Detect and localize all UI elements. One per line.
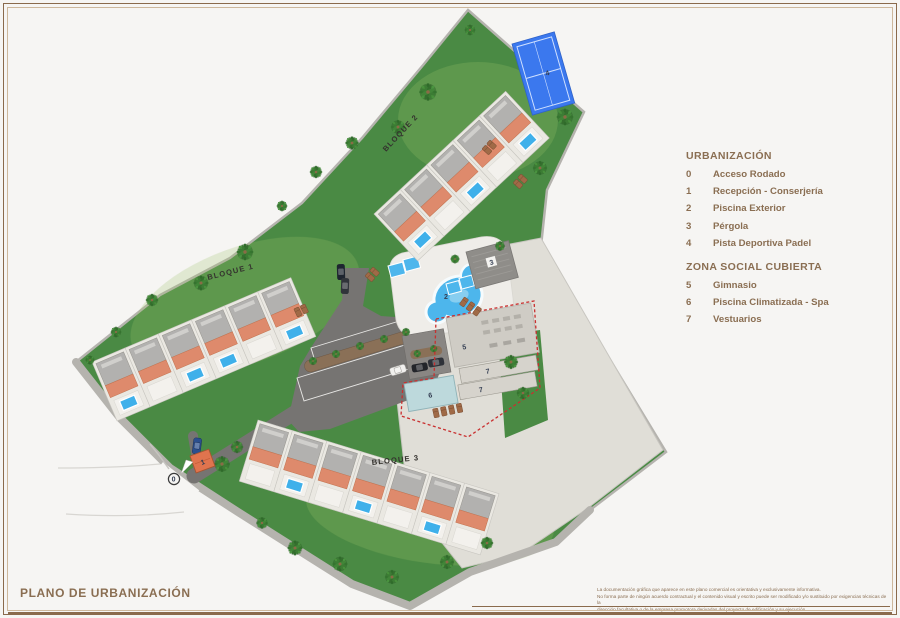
palm-tree-icon — [385, 570, 399, 584]
palm-tree-icon — [110, 326, 121, 337]
disclaimer-line: No forma parte de ningún acuerdo contrac… — [597, 594, 891, 607]
palm-tree-icon — [380, 335, 389, 344]
legend-item-label: Recepción - Conserjería — [713, 186, 823, 197]
legend-item-label: Vestuarios — [713, 314, 762, 325]
palm-tree-icon — [193, 275, 208, 290]
dark-car — [337, 264, 346, 280]
legend-item-padel: 4 Pista Deportiva Padel — [686, 238, 886, 249]
social-parking-annex — [402, 329, 451, 380]
palm-tree-icon — [276, 200, 287, 211]
palm-tree-icon — [256, 517, 268, 529]
palm-tree-icon — [332, 350, 341, 359]
palm-tree-icon — [517, 387, 530, 400]
palm-tree-icon — [481, 537, 494, 550]
palm-tree-icon — [464, 24, 475, 35]
legend-zona-social-title: ZONA SOCIAL CUBIERTA — [686, 261, 886, 273]
legend-item-number: 0 — [686, 169, 713, 180]
palm-tree-icon — [309, 357, 318, 366]
page-title: PLANO DE URBANIZACIÓN — [20, 586, 191, 600]
legend-item-number: 2 — [686, 203, 713, 214]
palm-tree-icon — [440, 555, 454, 569]
legend-item-label: Gimnasio — [713, 280, 757, 291]
legend-item-piscina-exterior: 2 Piscina Exterior — [686, 203, 886, 214]
palm-tree-icon — [557, 109, 574, 126]
frame-bottom-bar — [8, 612, 892, 616]
legend-item-label: Acceso Rodado — [713, 169, 786, 180]
palm-tree-icon — [495, 241, 505, 251]
social-building: 5 7 7 — [446, 303, 545, 400]
legend-item-vestuarios: 7 Vestuarios — [686, 314, 886, 325]
palm-tree-icon — [504, 355, 518, 369]
legend-item-piscina-climatizada: 6 Piscina Climatizada - Spa — [686, 297, 886, 308]
legend: URBANIZACIÓN 0 Acceso Rodado 1 Recepción… — [686, 150, 886, 331]
footer-divider — [472, 606, 890, 607]
dark-car — [341, 278, 350, 294]
palm-tree-icon — [450, 254, 459, 263]
palm-tree-icon — [237, 244, 254, 261]
legend-item-number: 7 — [686, 314, 713, 325]
disclaimer: La documentación gráfica que aparece en … — [597, 587, 891, 613]
legend-item-number: 4 — [686, 238, 713, 249]
legend-urbanizacion-title: URBANIZACIÓN — [686, 150, 886, 162]
disclaimer-line: La documentación gráfica que aparece en … — [597, 587, 891, 594]
legend-item-pergola: 3 Pérgola — [686, 221, 886, 232]
marker-0: 0 — [172, 477, 176, 484]
palm-tree-icon — [419, 83, 437, 101]
legend-item-number: 5 — [686, 280, 713, 291]
palm-tree-icon — [533, 161, 547, 175]
site-plan-page: 4 2 3 — [0, 0, 900, 618]
palm-tree-icon — [85, 355, 94, 364]
palm-tree-icon — [146, 294, 159, 307]
palm-tree-icon — [231, 441, 244, 454]
palm-tree-icon — [287, 540, 302, 555]
legend-item-recepcion: 1 Recepción - Conserjería — [686, 186, 886, 197]
legend-item-number: 6 — [686, 297, 713, 308]
palm-tree-icon — [402, 328, 411, 337]
palm-tree-icon — [310, 166, 323, 179]
marker-2: 2 — [444, 294, 448, 301]
legend-item-gimnasio: 5 Gimnasio — [686, 280, 886, 291]
palm-tree-icon — [345, 136, 359, 150]
legend-item-label: Pérgola — [713, 221, 748, 232]
legend-item-acceso: 0 Acceso Rodado — [686, 169, 886, 180]
legend-item-label: Piscina Exterior — [713, 203, 786, 214]
legend-item-label: Piscina Climatizada - Spa — [713, 297, 829, 308]
palm-tree-icon — [356, 342, 365, 351]
palm-tree-icon — [214, 456, 230, 472]
legend-item-number: 1 — [686, 186, 713, 197]
legend-item-label: Pista Deportiva Padel — [713, 238, 811, 249]
palm-tree-icon — [332, 556, 347, 571]
legend-item-number: 3 — [686, 221, 713, 232]
